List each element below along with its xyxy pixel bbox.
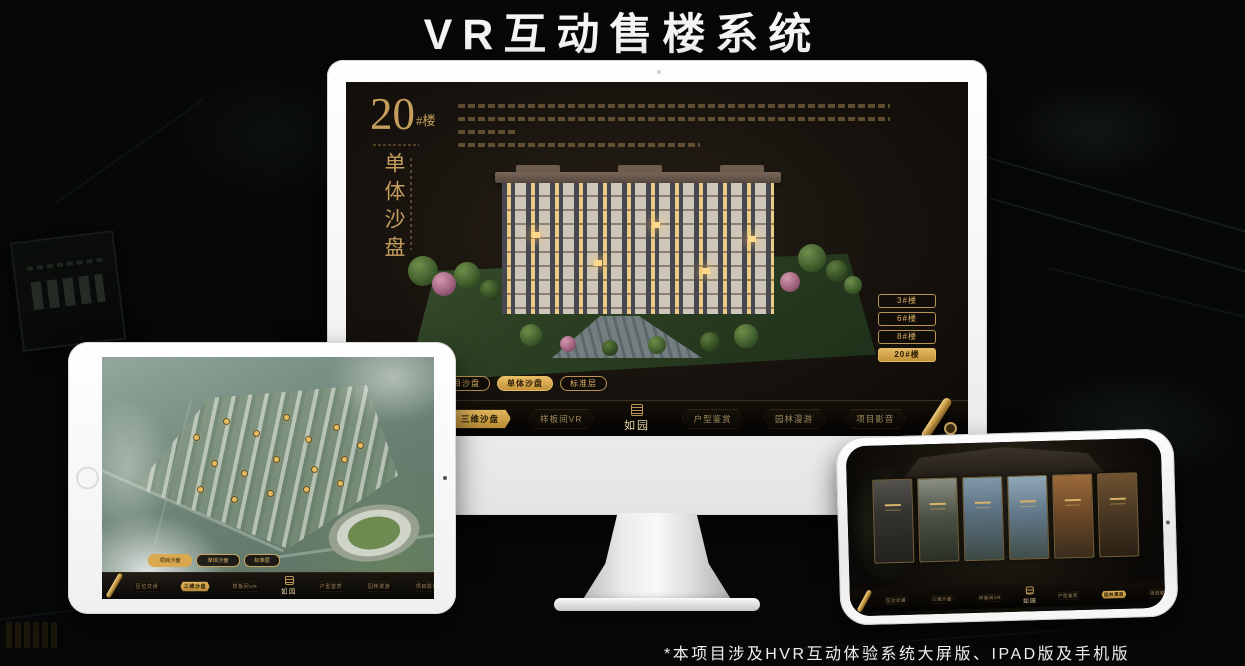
building-marker[interactable]: [224, 419, 229, 424]
monitor-stand-neck: [581, 513, 733, 605]
tree: [432, 272, 456, 296]
building-marker[interactable]: [254, 431, 259, 436]
nav-item-floorplans[interactable]: 户型鉴赏: [682, 409, 744, 429]
title-ornament: [373, 144, 419, 146]
ruyuan-seal-icon: [285, 576, 294, 585]
scroll-ornament-icon[interactable]: [916, 402, 960, 436]
tablet-navbar: 区位交通 三维沙盘 样板间VR 如园 户型鉴赏 园林漫游 项目影音: [102, 572, 434, 599]
lit-window: [748, 236, 756, 242]
tree: [700, 332, 720, 352]
tab-project-sandbox[interactable]: 项目沙盘: [148, 554, 192, 567]
building-marker[interactable]: [198, 487, 203, 492]
tab-standard-floor[interactable]: 标准层: [560, 376, 607, 391]
nav-item-garden-roam[interactable]: 园林漫游: [364, 581, 394, 592]
phone-device: 区位交通 三维沙盘 样板间VR 如园 户型鉴赏 园林漫游 项目影音: [835, 428, 1178, 625]
nav-item-garden-roam[interactable]: 园林漫游: [763, 409, 825, 429]
ruyuan-logo: 如园: [271, 576, 307, 597]
floor-button-3[interactable]: 3#楼: [878, 294, 936, 308]
floor-button-6[interactable]: 6#楼: [878, 312, 936, 326]
nav-item-showroom-vr[interactable]: 样板间VR: [528, 409, 594, 429]
nav-item-project-media[interactable]: 项目影音: [412, 581, 434, 592]
page-title: VR互动售楼系统: [0, 0, 1245, 62]
building-marker[interactable]: [268, 491, 273, 496]
nav-item-3d-sandbox[interactable]: 三维沙盘: [929, 594, 955, 603]
background-plaque: [10, 230, 127, 352]
roof-penthouse: [720, 165, 764, 173]
monitor-stand-base: [554, 598, 760, 611]
floor-button-20[interactable]: 20#楼: [878, 348, 936, 362]
footnote: *本项目涉及HVR互动体验系统大屏版、IPAD版及手机版: [664, 640, 1130, 664]
camera-icon: [443, 476, 447, 480]
building-marker[interactable]: [306, 437, 311, 442]
map-road-line: [990, 197, 1245, 276]
tree: [780, 272, 800, 292]
scene-card[interactable]: [1097, 472, 1139, 557]
tree: [454, 262, 480, 288]
tree: [798, 244, 826, 272]
tree: [602, 340, 618, 356]
building-marker[interactable]: [212, 461, 217, 466]
ruyuan-seal-icon: [631, 404, 643, 416]
floor-button-group: 3#楼 6#楼 8#楼 20#楼: [878, 294, 938, 366]
lit-window: [594, 260, 602, 266]
building-marker[interactable]: [232, 497, 237, 502]
background-logo-mark: [6, 622, 60, 648]
nav-item-location[interactable]: 区位交通: [883, 596, 909, 605]
tab-single-sandbox[interactable]: 单体沙盘: [196, 554, 240, 567]
map-road-line: [1048, 267, 1245, 327]
ruyuan-logo-text: 如园: [624, 417, 650, 433]
scene-card[interactable]: [872, 479, 914, 564]
building-facade: [502, 183, 774, 314]
lit-window: [532, 232, 540, 238]
building-number-suffix: #楼: [416, 113, 436, 128]
nav-item-3d-sandbox[interactable]: 三维沙盘: [180, 581, 210, 592]
scroll-ornament-icon[interactable]: [857, 591, 874, 611]
webcam-icon: [657, 70, 661, 74]
nav-item-project-media[interactable]: 项目影音: [844, 409, 906, 429]
tab-standard-floor[interactable]: 标准层: [244, 554, 280, 567]
home-button[interactable]: [76, 467, 99, 490]
building-marker[interactable]: [284, 415, 289, 420]
building-marker[interactable]: [338, 481, 343, 486]
page: VR互动售楼系统 20#楼 单体沙盘: [0, 0, 1245, 666]
view-tab-group: 项目沙盘 单体沙盘 标准层: [434, 376, 607, 391]
scene-card[interactable]: [1052, 474, 1094, 559]
ruyuan-logo-text: 如园: [281, 587, 297, 596]
lit-window: [652, 222, 660, 228]
tree: [826, 260, 848, 282]
nav-item-project-media[interactable]: 项目影音: [1147, 588, 1165, 597]
scene-card-carousel: [872, 472, 1139, 563]
roof-penthouse: [618, 165, 662, 173]
building-marker[interactable]: [334, 425, 339, 430]
building-marker[interactable]: [312, 467, 317, 472]
scroll-ornament-icon[interactable]: [107, 574, 123, 598]
building-roof: [495, 172, 781, 183]
map-blob: [1005, 80, 1185, 180]
building-marker[interactable]: [342, 457, 347, 462]
building-3d-model[interactable]: [402, 148, 876, 394]
nav-item-location[interactable]: 区位交通: [132, 581, 162, 592]
nav-item-floorplans[interactable]: 户型鉴赏: [1055, 591, 1081, 600]
nav-item-floorplans[interactable]: 户型鉴赏: [316, 581, 346, 592]
nav-item-3d-sandbox[interactable]: 三维沙盘: [449, 409, 511, 429]
tablet-view-tab-group: 项目沙盘 单体沙盘 标准层: [148, 554, 280, 567]
building-marker[interactable]: [358, 443, 363, 448]
scene-card[interactable]: [917, 477, 959, 562]
ruyuan-logo: 如园: [1015, 586, 1046, 607]
ruyuan-seal-icon: [1026, 586, 1034, 594]
tree: [734, 324, 758, 348]
lit-window: [702, 268, 710, 274]
building-marker[interactable]: [274, 457, 279, 462]
ruyuan-logo: 如园: [602, 404, 672, 433]
nav-item-showroom-vr[interactable]: 样板间VR: [229, 581, 261, 592]
building-marker[interactable]: [304, 487, 309, 492]
tree: [844, 276, 862, 294]
floor-button-8[interactable]: 8#楼: [878, 330, 936, 344]
tree: [560, 336, 576, 352]
nav-item-garden-roam[interactable]: 园林漫游: [1101, 590, 1127, 599]
apartment-building: [502, 172, 774, 314]
roof-penthouse: [516, 165, 560, 173]
camera-icon: [1166, 520, 1170, 524]
phone-screen: 区位交通 三维沙盘 样板间VR 如园 户型鉴赏 园林漫游 项目影音: [846, 438, 1166, 617]
scene-card[interactable]: [1007, 475, 1049, 560]
building-marker[interactable]: [194, 435, 199, 440]
gate-silhouette: [903, 444, 1104, 478]
scene-card[interactable]: [962, 476, 1004, 561]
tree: [648, 336, 666, 354]
nav-item-showroom-vr[interactable]: 样板间VR: [976, 593, 1004, 602]
building-title: 20#楼: [370, 92, 435, 137]
tablet-screen: 项目沙盘 单体沙盘 标准层 区位交通 三维沙盘 样板间VR 如园 户型鉴赏 园林…: [102, 357, 434, 599]
ruyuan-logo-text: 如园: [1023, 597, 1037, 605]
building-marker[interactable]: [242, 471, 247, 476]
tree: [480, 280, 500, 300]
building-number: 20: [370, 89, 415, 139]
tree: [520, 324, 542, 346]
tab-single-sandbox[interactable]: 单体沙盘: [497, 376, 553, 391]
tablet-device: 项目沙盘 单体沙盘 标准层 区位交通 三维沙盘 样板间VR 如园 户型鉴赏 园林…: [68, 342, 456, 614]
